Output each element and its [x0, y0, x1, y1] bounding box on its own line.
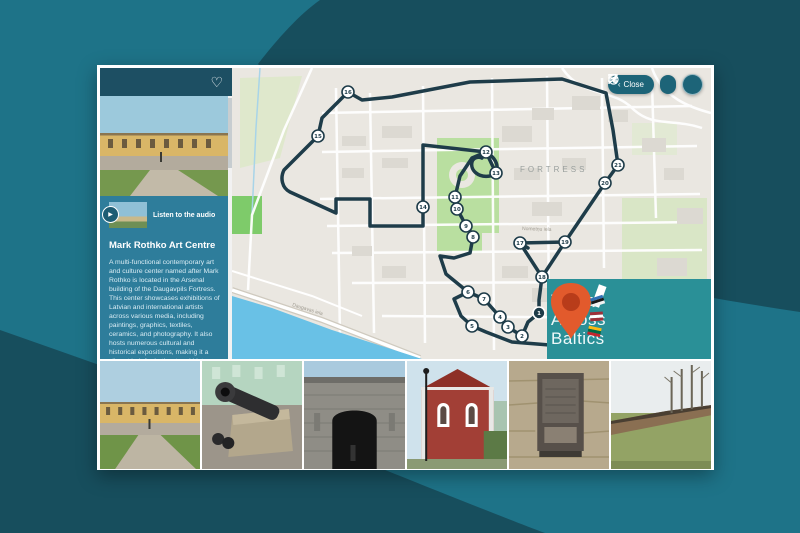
close-button-label: Close — [624, 80, 644, 89]
map-marker-13[interactable] — [490, 167, 502, 179]
street-label-nometnu: Nometņu iela — [522, 226, 552, 233]
map-marker-5[interactable] — [466, 320, 478, 332]
gallery-photo-fortress-gate[interactable] — [304, 361, 404, 469]
tour-map[interactable]: FORTRESS Daugavas iela Nometņu iela 1234… — [232, 68, 711, 359]
gallery-photo-cannon[interactable] — [202, 361, 302, 469]
map-marker-16[interactable] — [342, 86, 354, 98]
map-marker-11[interactable] — [449, 191, 461, 203]
map-marker-3[interactable] — [502, 321, 514, 333]
map-marker-1[interactable] — [533, 307, 545, 319]
map-marker-19[interactable] — [559, 236, 571, 248]
photo-gallery — [100, 361, 711, 469]
tours-across-baltics-logo: Tours Across Baltics — [547, 279, 711, 359]
map-marker-20[interactable] — [599, 177, 611, 189]
map-marker-4[interactable] — [494, 311, 506, 323]
gallery-photo-memorial-plaque[interactable] — [509, 361, 609, 469]
stop-title: Mark Rothko Art Centre — [109, 240, 221, 251]
stop-list-button[interactable] — [682, 74, 703, 95]
map-marker-12[interactable] — [480, 146, 492, 158]
gallery-photo-arsenal-building[interactable] — [100, 361, 200, 469]
map-toolbar: ‹ Close — [608, 74, 703, 95]
gallery-photo-fortress-rampart[interactable] — [611, 361, 711, 469]
map-marker-14[interactable] — [417, 201, 429, 213]
map-marker-10[interactable] — [451, 203, 463, 215]
baltic-flags-icon — [587, 284, 606, 337]
audio-label: Listen to the audio — [153, 212, 215, 219]
stop-photo — [100, 96, 228, 196]
map-tools-group — [660, 75, 676, 94]
audio-play-icon[interactable]: ▶ — [102, 206, 119, 223]
map-marker-15[interactable] — [312, 130, 324, 142]
map-marker-17[interactable] — [514, 237, 526, 249]
map-marker-21[interactable] — [612, 159, 624, 171]
favorite-heart-icon[interactable]: ♡ — [210, 75, 223, 89]
gallery-photo-red-brick-building[interactable] — [407, 361, 507, 469]
menu-list-icon — [608, 74, 618, 82]
map-marker-7[interactable] — [478, 293, 490, 305]
tour-window: ♡ — [97, 65, 714, 470]
map-marker-2[interactable] — [516, 330, 528, 342]
map-marker-8[interactable] — [467, 231, 479, 243]
map-marker-6[interactable] — [462, 286, 474, 298]
map-area-label: FORTRESS — [520, 165, 587, 174]
stop-info-header: ♡ — [100, 68, 232, 96]
stop-description-1: A multi-functional contemporary art and … — [109, 258, 221, 359]
audio-thumbnail: ▶ — [109, 202, 147, 228]
map-marker-9[interactable] — [460, 220, 472, 232]
logo-pin-icon — [547, 279, 609, 351]
desktop-background: ♡ — [0, 0, 800, 533]
listen-audio-button[interactable]: ▶ Listen to the audio — [109, 202, 221, 228]
stop-info-panel: ♡ — [100, 68, 232, 359]
